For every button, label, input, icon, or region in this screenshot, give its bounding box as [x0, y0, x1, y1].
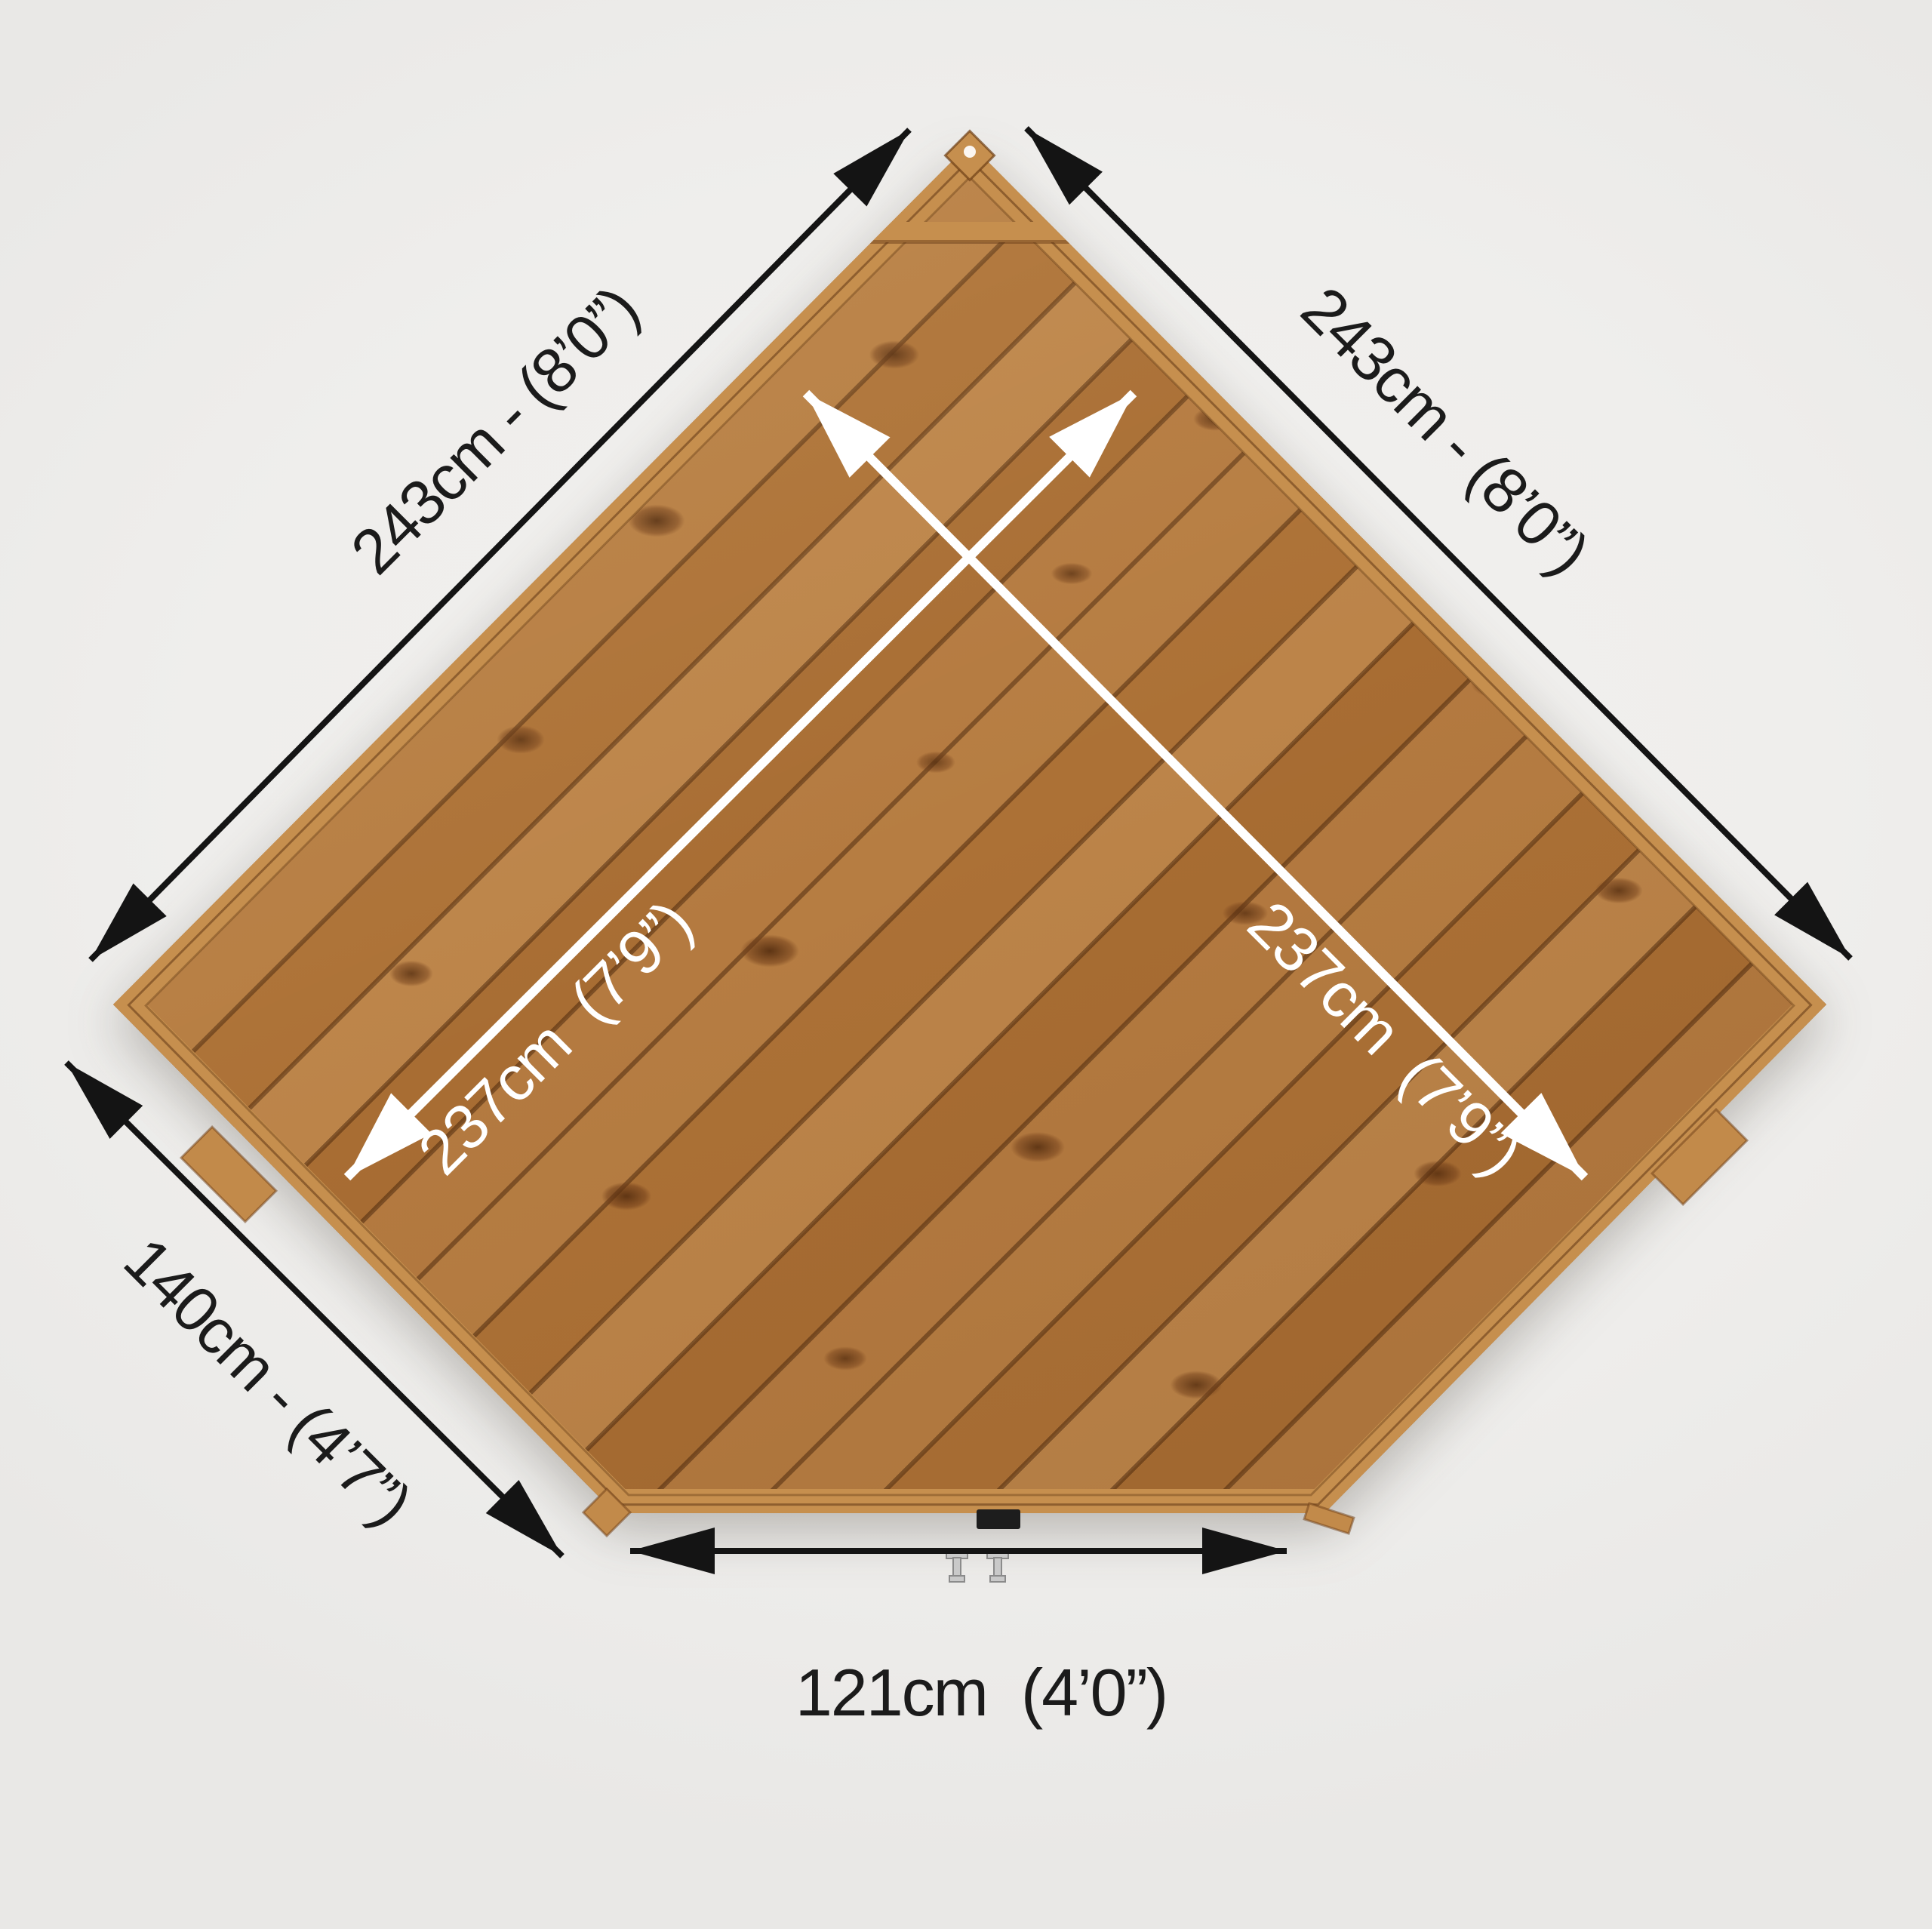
dim-arrow-diagonal-left	[347, 393, 1134, 1177]
floor-frame-band	[113, 143, 1826, 1513]
door-hinge-pins	[946, 1552, 1008, 1582]
dim-label-front-wall: 121cm (4’0”)	[795, 1660, 1167, 1726]
diagram-overlay	[0, 0, 1932, 1929]
apex-cross-beam	[851, 222, 1088, 244]
dim-arrow-diagonal-right	[806, 393, 1585, 1177]
floorplan-diagram: 243cm - (8’0”) 243cm - (8’0”) 237cm (7’9…	[0, 0, 1932, 1929]
door-latch-plate	[977, 1509, 1020, 1529]
dim-arrow-back-right-wall	[1026, 128, 1850, 958]
dim-arrow-back-left-wall	[91, 130, 909, 960]
